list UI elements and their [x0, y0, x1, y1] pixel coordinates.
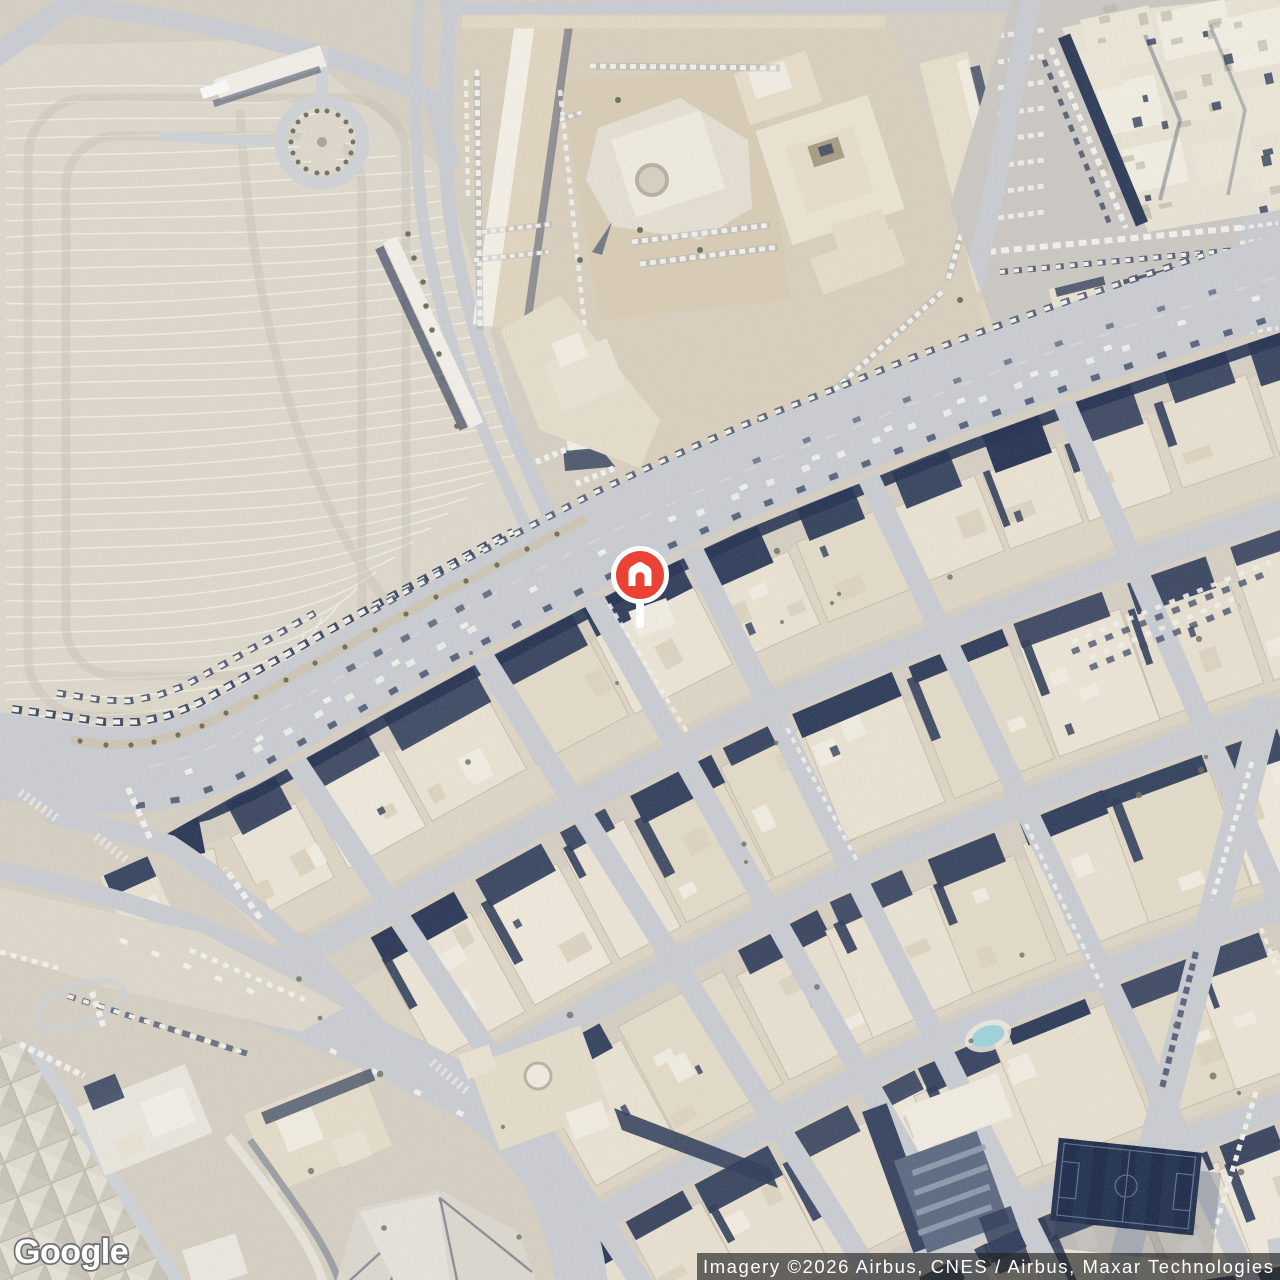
svg-text:Google: Google [14, 1233, 128, 1271]
svg-text:Imagery ©2026 Airbus, CNES / A: Imagery ©2026 Airbus, CNES / Airbus, Max… [703, 1256, 1275, 1277]
